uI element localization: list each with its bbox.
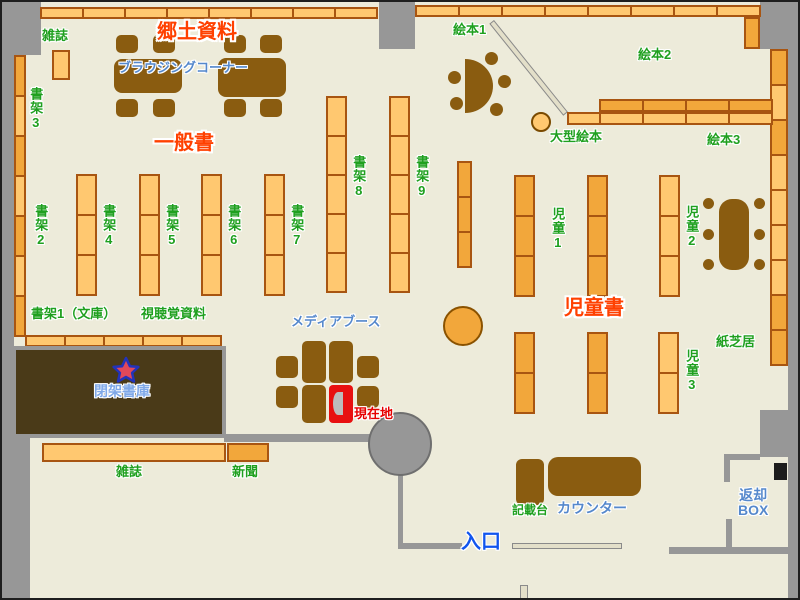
media-booth-cell [302, 385, 326, 423]
shelf-segment [770, 224, 788, 261]
counter-desk [548, 457, 641, 496]
shelf-segment [770, 329, 788, 366]
shelf-segment [716, 5, 761, 17]
label-shelf8: 書架8 [351, 155, 365, 199]
stool [498, 75, 511, 88]
label-current-location: 現在地 [354, 407, 393, 421]
wall [398, 543, 462, 549]
children-table [719, 199, 749, 270]
shelf-segment [139, 254, 160, 296]
shelf-segment [14, 55, 26, 97]
shelf-segment [770, 189, 788, 226]
shelf-segment [389, 135, 410, 176]
shelf-segment [770, 49, 788, 86]
wall [724, 454, 730, 482]
label-picture-books3: 絵本3 [707, 133, 740, 147]
shelf-segment [587, 332, 608, 374]
closed-stacks-room: 閉架書庫 [12, 346, 226, 438]
shelf-segment [544, 5, 589, 17]
label-children2: 児童2 [684, 205, 698, 249]
shelf-segment [42, 443, 226, 462]
shelf-segment [770, 259, 788, 296]
shelf-segment [264, 174, 285, 216]
shelf-segment [599, 112, 644, 125]
pillar [368, 412, 432, 476]
shelf-segment [514, 332, 535, 374]
shelf-segment [14, 215, 26, 257]
media-booth-cell [329, 341, 353, 383]
shelf-segment [457, 161, 472, 198]
wall [224, 434, 372, 442]
round-table [443, 306, 483, 346]
media-booth-cell [276, 386, 298, 408]
label-shelf7: 書架7 [289, 204, 303, 248]
media-booth-cell [357, 356, 379, 378]
shelf-segment [76, 174, 97, 216]
door-piece [520, 585, 528, 600]
shelf-segment [770, 154, 788, 191]
shelf-segment [326, 252, 347, 293]
stool [754, 229, 765, 240]
shelf-segment [14, 255, 26, 297]
shelf-segment [659, 255, 680, 297]
shelf-segment [82, 7, 126, 19]
shelf-segment [501, 5, 546, 17]
shelf-segment [685, 99, 730, 112]
shelf-segment [292, 7, 336, 19]
label-picture-books1: 絵本1 [453, 23, 486, 37]
return-slot [774, 463, 787, 480]
shelf-segment [458, 5, 503, 17]
shelf-segment [599, 99, 644, 112]
shelf-segment [52, 50, 70, 80]
wall [760, 2, 800, 49]
label-av-materials: 視聴覚資料 [141, 307, 206, 321]
media-booth-cell [357, 386, 379, 408]
shelf-segment [76, 254, 97, 296]
label-kamishibai: 紙芝居 [716, 335, 755, 349]
shelf-segment [630, 5, 675, 17]
shelf-segment [673, 5, 718, 17]
shelf-segment [14, 135, 26, 177]
label-shelf9: 書架9 [414, 155, 428, 199]
shelf-segment [642, 112, 687, 125]
label-writing-desk: 記載台 [512, 504, 548, 517]
shelf-segment [250, 7, 294, 19]
person-marker-icon [333, 392, 343, 415]
wall [2, 2, 41, 55]
label-shelf1-bunko: 書架1（文庫） [31, 307, 116, 321]
label-large-picture-books: 大型絵本 [550, 130, 602, 144]
wall [2, 415, 30, 600]
shelf-segment [326, 135, 347, 176]
chair [260, 35, 282, 53]
shelf-segment [415, 5, 460, 17]
label-return-box-line1: 返却 [739, 487, 767, 503]
shelf-segment [139, 174, 160, 216]
shelf-segment [389, 174, 410, 215]
label-counter: カウンター [557, 501, 627, 516]
label-return-box-line2: BOX [738, 502, 768, 518]
shelf-segment [587, 255, 608, 297]
wall [379, 2, 415, 49]
label-shelf2: 書架2 [33, 204, 47, 248]
label-media-booth: メディアブース [291, 315, 380, 329]
stool [754, 198, 765, 209]
label-shelf4: 書架4 [101, 204, 115, 248]
shelf-segment [587, 372, 608, 414]
shelf-segment [514, 372, 535, 414]
label-general-books: 一般書 [154, 132, 214, 154]
shelf-segment [659, 215, 680, 257]
label-local-materials: 郷土資料 [157, 21, 237, 43]
label-children1: 児童1 [550, 207, 564, 251]
shelf-segment [389, 252, 410, 293]
stool [450, 97, 463, 110]
wall [788, 49, 800, 600]
chair [116, 99, 138, 117]
shelf-segment [201, 174, 222, 216]
chair [153, 99, 175, 117]
wall [726, 519, 732, 548]
gate-line [512, 543, 622, 549]
label-children3: 児童3 [684, 349, 698, 393]
shelf-segment [514, 175, 535, 217]
label-newspapers: 新聞 [232, 465, 258, 479]
shelf-segment [326, 174, 347, 215]
shelf-segment [326, 96, 347, 137]
shelf-segment [14, 95, 26, 137]
shelf-segment [457, 196, 472, 233]
diagonal-partition [489, 20, 568, 116]
shelf-segment [201, 214, 222, 256]
chair [260, 99, 282, 117]
label-shelf5: 書架5 [164, 204, 178, 248]
shelf-segment [587, 175, 608, 217]
shelf-segment [658, 372, 679, 414]
stool [703, 198, 714, 209]
large-picture-book-table [531, 112, 551, 132]
story-table [465, 59, 493, 113]
shelf-segment [770, 294, 788, 331]
shelf-segment [567, 112, 601, 125]
chair [116, 35, 138, 53]
shelf-segment [14, 295, 26, 337]
shelf-segment [514, 215, 535, 257]
media-booth-cell [302, 341, 326, 383]
shelf-segment [389, 96, 410, 137]
shelf-segment [658, 332, 679, 374]
closed-stacks-label: 閉架書庫 [94, 384, 150, 399]
writing-desk-table [516, 459, 544, 505]
wall [760, 410, 788, 457]
shelf-segment [642, 99, 687, 112]
stool [703, 229, 714, 240]
label-children-books: 児童書 [564, 297, 624, 319]
shelf-segment [201, 254, 222, 296]
label-browsing-corner: ブラウジングコーナー [118, 61, 248, 75]
shelf-segment [208, 7, 252, 19]
label-return-box: 返却 BOX [738, 488, 768, 519]
media-booth-cell [276, 356, 298, 378]
shelf-segment [728, 112, 773, 125]
shelf-segment [14, 175, 26, 217]
stool [490, 103, 503, 116]
shelf-segment [264, 254, 285, 296]
shelf-segment [40, 7, 84, 19]
stool [485, 52, 498, 65]
stool [754, 259, 765, 270]
shelf-segment [264, 214, 285, 256]
label-magazines-bottom: 雑誌 [116, 465, 142, 479]
library-floor-map: 閉架書庫 郷土資料 雑誌 ブラウジングコーナー 一般書 書架3 書架2 書架4 … [0, 0, 800, 600]
label-shelf3: 書架3 [28, 87, 42, 131]
shelf-segment [124, 7, 168, 19]
shelf-segment [139, 214, 160, 256]
label-shelf6: 書架6 [226, 204, 240, 248]
shelf-segment [389, 213, 410, 254]
shelf-segment [744, 17, 760, 49]
label-picture-books2: 絵本2 [638, 48, 671, 62]
shelf-segment [227, 443, 269, 462]
shelf-segment [728, 99, 773, 112]
shelf-segment [514, 255, 535, 297]
shelf-segment [685, 112, 730, 125]
shelf-segment [587, 5, 632, 17]
label-entrance: 入口 [461, 531, 501, 553]
chair [224, 99, 246, 117]
stool [703, 259, 714, 270]
current-star-icon [111, 356, 141, 386]
stool [448, 71, 461, 84]
shelf-segment [326, 213, 347, 254]
shelf-segment [587, 215, 608, 257]
shelf-segment [166, 7, 210, 19]
shelf-segment [334, 7, 378, 19]
wall [398, 467, 403, 548]
shelf-segment [659, 175, 680, 217]
wall [669, 547, 788, 554]
shelf-segment [457, 231, 472, 268]
label-magazines-top: 雑誌 [42, 29, 68, 43]
shelf-segment [76, 214, 97, 256]
